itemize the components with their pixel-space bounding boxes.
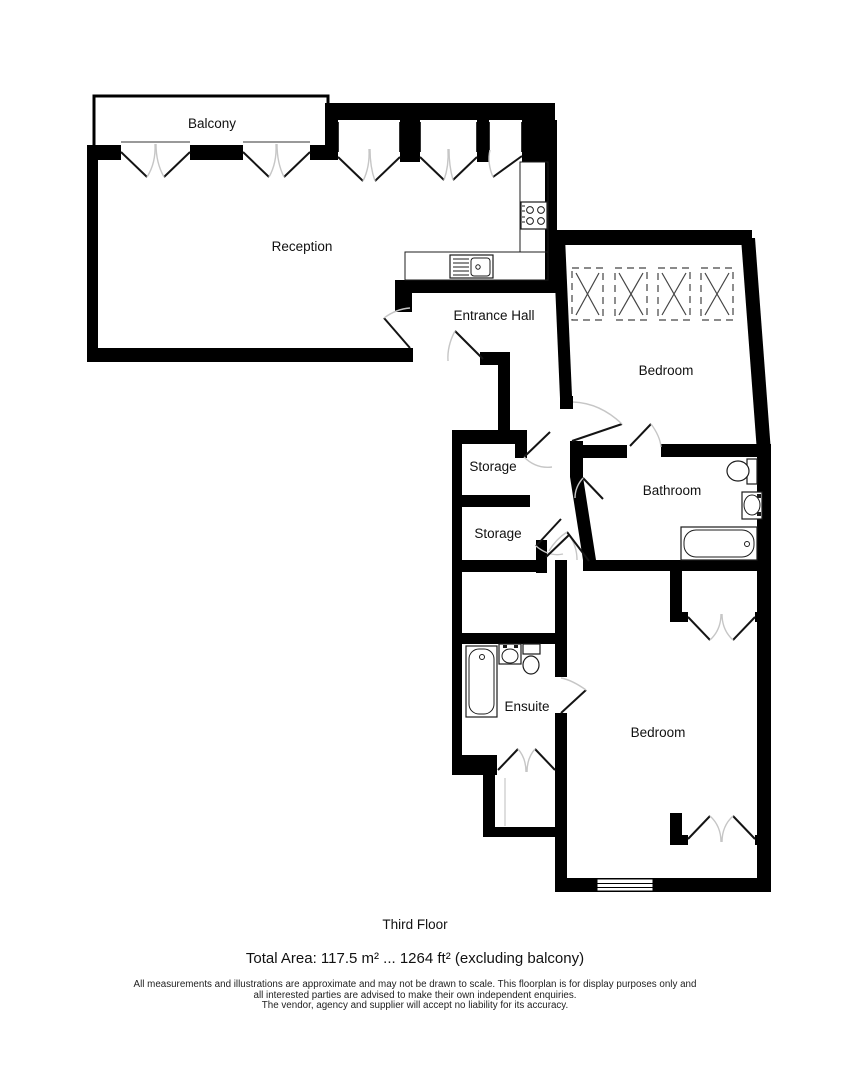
room-label-storage-a: Storage: [469, 459, 516, 474]
reception-hall-door: [384, 308, 410, 348]
room-label-reception: Reception: [272, 239, 333, 254]
entrance-door: [448, 331, 483, 361]
bedroom-back-bay-doors-bottom: [688, 816, 755, 842]
room-label-ensuite: Ensuite: [504, 699, 549, 714]
ensuite-toilet-icon: [523, 644, 540, 674]
bedroom-front-door: [572, 402, 622, 441]
reception-window-door-1: [338, 149, 400, 181]
wardrobe-icon: [658, 268, 690, 320]
room-label-entrance-hall: Entrance Hall: [453, 308, 534, 323]
room-label-bathroom: Bathroom: [643, 483, 702, 498]
wardrobe-icon: [572, 268, 603, 320]
floorplan-page: Balcony Reception Entrance Hall Storage …: [0, 0, 862, 1080]
disclaimer-line-1: All measurements and illustrations are a…: [134, 979, 697, 990]
ensuite-bay-doors: [498, 749, 555, 772]
total-area-text: Total Area: 117.5 m² ... 1264 ft² (exclu…: [246, 950, 584, 967]
floorplan-canvas: Balcony Reception Entrance Hall Storage …: [0, 0, 862, 1080]
wardrobe-icon: [701, 268, 733, 320]
bathtub-icon: [681, 527, 757, 560]
disclaimer-line-3: The vendor, agency and supplier will acc…: [262, 1000, 568, 1011]
basin-icon: [742, 492, 762, 519]
room-labels: Balcony Reception Entrance Hall Storage …: [188, 116, 701, 740]
wardrobe-icons: [572, 268, 733, 320]
bathroom-door: [630, 424, 661, 447]
room-label-bedroom-front: Bedroom: [639, 363, 694, 378]
room-label-bedroom-back: Bedroom: [631, 725, 686, 740]
wardrobe-icon: [615, 268, 647, 320]
toilet-icon: [727, 459, 757, 484]
storage-a-door: [524, 432, 552, 467]
kitchen-sink-icon: [450, 255, 493, 278]
balcony-door-1: [121, 144, 190, 177]
floor-title: Third Floor: [382, 917, 448, 932]
footer: Third Floor Total Area: 117.5 m² ... 126…: [134, 917, 697, 1011]
reception-window-door-2: [420, 149, 477, 180]
ensuite-basin-icon: [499, 644, 521, 664]
bedroom-window-icon: [597, 879, 653, 891]
reception-window-door-3: [489, 150, 522, 177]
hob-icon: [521, 202, 547, 229]
room-label-balcony: Balcony: [188, 116, 236, 131]
ensuite-bathtub-icon: [466, 646, 497, 717]
bedroom-back-bay-doors-top: [688, 614, 755, 640]
ensuite-door: [561, 678, 586, 713]
balcony-door-2: [243, 144, 310, 177]
bathroom-fixtures: [681, 459, 762, 560]
kitchen-fixtures: [405, 162, 548, 280]
room-label-storage-b: Storage: [474, 526, 521, 541]
